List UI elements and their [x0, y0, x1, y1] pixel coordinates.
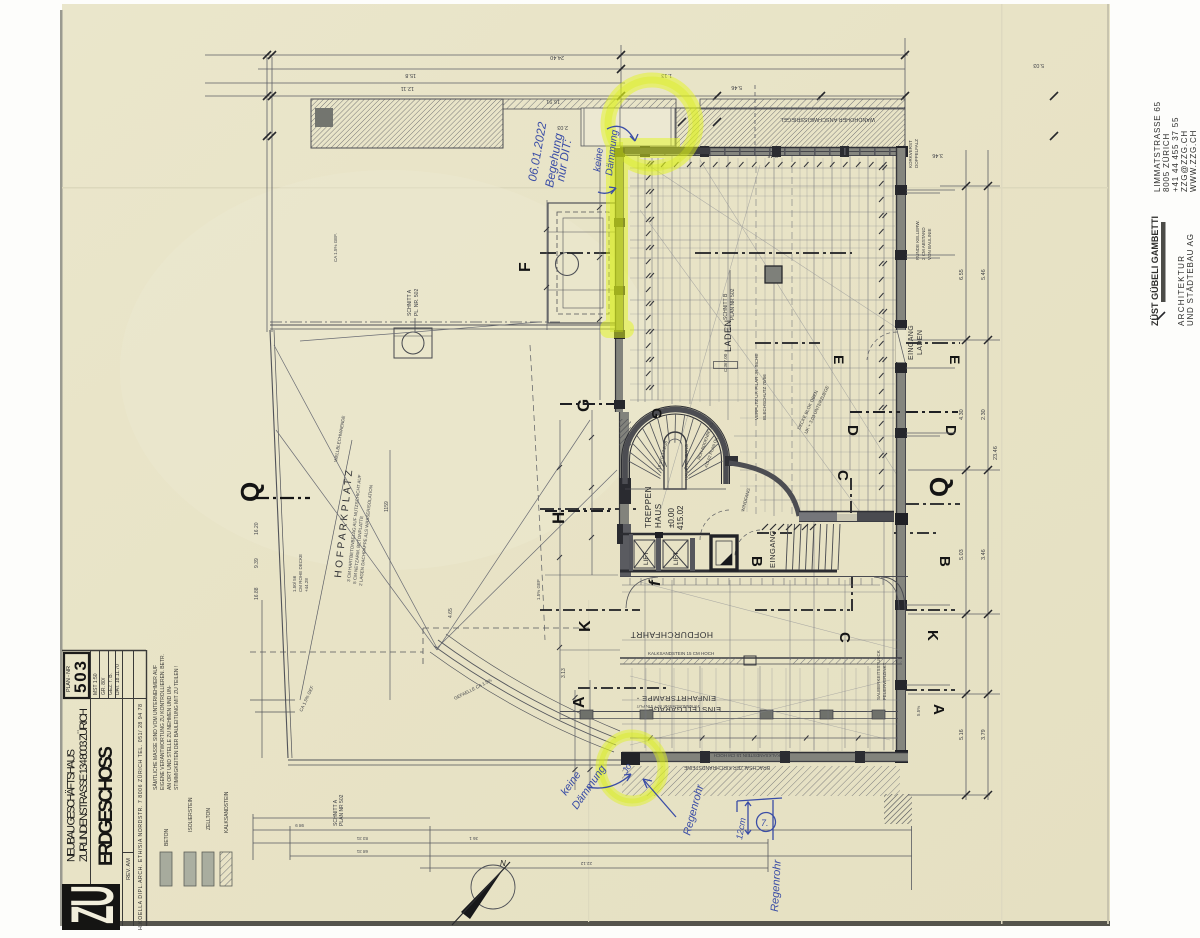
svg-text:C: C: [836, 632, 853, 643]
svg-text:ISOLIERSTEIN: ISOLIERSTEIN: [188, 797, 194, 832]
svg-text:PLAN NR 502: PLAN NR 502: [339, 794, 345, 826]
svg-text:68 31: 68 31: [356, 849, 368, 854]
svg-text:TREPPEN: TREPPEN: [644, 486, 653, 528]
svg-text:1159: 1159: [384, 501, 390, 512]
svg-text:BETON: BETON: [164, 828, 170, 846]
svg-text:ERDGESCHOSS: ERDGESCHOSS: [96, 746, 117, 866]
svg-text:415.02: 415.02: [676, 505, 685, 530]
svg-text:CA 1.5% GEF.: CA 1.5% GEF.: [333, 233, 338, 262]
svg-text:7.: 7.: [761, 818, 769, 828]
svg-text:16.88: 16.88: [254, 587, 260, 600]
svg-text:6.55: 6.55: [959, 269, 965, 280]
svg-text:BRACHSALZER KIRCHRANDSTEINE: BRACHSALZER KIRCHRANDSTEINE: [683, 764, 770, 770]
svg-text:H: H: [549, 512, 568, 524]
svg-text:1.5% GEF: 1.5% GEF: [536, 579, 541, 600]
svg-text:5.46: 5.46: [981, 269, 987, 280]
svg-text:SÄMTLICHE MASSE SIND VOM U: SÄMTLICHE MASSE SIND VOM UNTERNEHMER AUF: [152, 665, 159, 790]
svg-text:GEZ. f. B.: GEZ. f. B.: [108, 673, 114, 695]
svg-text:503: 503: [71, 661, 90, 693]
svg-text:3% WANDSCHIENE 90 + 4 IN PUT: 3% WANDSCHIENE 90 + 4 IN PUT: [636, 704, 700, 709]
svg-text:Q: Q: [924, 476, 954, 497]
svg-text:24.40: 24.40: [550, 54, 564, 60]
svg-text:D: D: [844, 425, 861, 436]
svg-text:5.16: 5.16: [959, 729, 965, 740]
svg-text:E: E: [831, 355, 847, 364]
svg-text:LIFT: LIFT: [643, 552, 650, 565]
svg-text:3.46: 3.46: [981, 549, 987, 560]
svg-text:C 367.00: C 367.00: [723, 353, 728, 372]
svg-text:LADEN: LADEN: [917, 330, 924, 355]
svg-text:2.03: 2.03: [557, 124, 568, 130]
svg-text:23.46: 23.46: [993, 446, 999, 460]
svg-text:KALKSANDSTEIN: KALKSANDSTEIN: [224, 791, 230, 833]
svg-text:MST 1:50: MST 1:50: [93, 673, 99, 695]
svg-text:EINGANG: EINGANG: [768, 530, 777, 568]
svg-text:K: K: [924, 630, 941, 641]
svg-text:C: C: [834, 470, 851, 481]
svg-text:VERPUTZ UP. PILAR JR. SICHE: VERPUTZ UP. PILAR JR. SICHE: [754, 354, 759, 420]
svg-text:B: B: [936, 556, 953, 567]
svg-text:K: K: [577, 620, 594, 632]
svg-text:E: E: [947, 355, 963, 364]
svg-text:+44.28: +44.28: [304, 578, 309, 592]
svg-text:HAUS: HAUS: [654, 503, 663, 528]
svg-text:STIMMIGKEITEN DER BAULEITUNG: STIMMIGKEITEN DER BAULEITUNG MIT ZU TEIL…: [174, 666, 180, 790]
svg-text:ARCHITEKTUR: ARCHITEKTUR: [1177, 256, 1186, 326]
svg-text:2.30: 2.30: [981, 409, 987, 420]
svg-text:A: A: [571, 696, 588, 708]
svg-text:22.12: 22.12: [580, 861, 592, 866]
svg-text:DAT. 18.11.70: DAT. 18.11.70: [115, 664, 121, 695]
svg-text:1.50/ 56: 1.50/ 56: [292, 575, 297, 592]
svg-text:LIMMATSTRASSE 65: LIMMATSTRASSE 65: [1153, 101, 1162, 192]
svg-text:B: B: [748, 556, 765, 567]
svg-text:3.13: 3.13: [561, 668, 567, 678]
svg-text:EINGANG: EINGANG: [908, 325, 915, 360]
svg-text:36 1: 36 1: [469, 836, 478, 841]
svg-text:3.79: 3.79: [981, 729, 987, 740]
svg-text:5.03: 5.03: [959, 549, 965, 560]
svg-text:ZURLINDENSTRASSE 134 8003 ZÜ: ZURLINDENSTRASSE 134 8003 ZÜRICH: [78, 708, 90, 862]
svg-text:FEUERVERZINKT: FEUERVERZINKT: [882, 662, 887, 700]
svg-text:16.20: 16.20: [254, 522, 260, 535]
svg-text:EIGENE VERANTWORTUNG ZU KON: EIGENE VERANTWORTUNG ZU KONTROLLIEREN. B…: [160, 654, 166, 790]
svg-text:NEUBAU GESCHÄFTSHAUS: NEUBAU GESCHÄFTSHAUS: [66, 749, 78, 862]
svg-text:ZÜST GÜBELI GAMBETTI: ZÜST GÜBELI GAMBETTI: [1150, 216, 1160, 326]
svg-text:GR. 80/: GR. 80/: [101, 677, 107, 695]
svg-text:+41 44 455 37 55: +41 44 455 37 55: [1171, 117, 1180, 192]
svg-text:D: D: [942, 425, 959, 436]
svg-text:H.KOELLA DIPL.ARCH. ETH/SIA: H.KOELLA DIPL.ARCH. ETH/SIA NORDSTR. 7 8…: [137, 704, 144, 930]
svg-text:5.46: 5.46: [731, 84, 742, 90]
svg-text:98 9: 98 9: [295, 823, 304, 828]
svg-text:±0.00: ±0.00: [667, 507, 676, 528]
svg-text:ZU: ZU: [60, 887, 127, 924]
svg-text:LADEN: LADEN: [723, 319, 733, 352]
svg-text:9.39: 9.39: [254, 558, 260, 568]
svg-text:ZZG@ZZG.CH: ZZG@ZZG.CH: [1180, 130, 1189, 192]
svg-text:PLAN NR 502: PLAN NR 502: [730, 288, 736, 320]
svg-text:HAUPTEINGANG: HAUPTEINGANG: [684, 443, 689, 480]
svg-text:SCHNITT A: SCHNITT A: [407, 289, 413, 316]
svg-text:G: G: [649, 408, 665, 419]
svg-text:5.5%: 5.5%: [916, 706, 921, 716]
svg-text:HOFDURCHFAHRT: HOFDURCHFAHRT: [630, 630, 713, 640]
svg-text:F: F: [517, 262, 534, 272]
svg-text:RUNDE KELLERW.: RUNDE KELLERW.: [915, 220, 920, 260]
svg-text:G: G: [574, 399, 593, 412]
svg-text:KALKSANDSTEIN 15 CM HOCH: KALKSANDSTEIN 15 CM HOCH: [714, 753, 780, 758]
svg-text:DOPPELFALZ: DOPPELFALZ: [914, 139, 919, 168]
svg-text:12.11: 12.11: [401, 85, 414, 91]
svg-text:KALKSANDSTEIN 15 CM HOCH: KALKSANDSTEIN 15 CM HOCH: [648, 651, 714, 656]
svg-text:BLECHSCHUTZ 70/56: BLECHSCHUTZ 70/56: [762, 374, 767, 420]
svg-text:PL. NR. 502: PL. NR. 502: [414, 289, 420, 316]
svg-text:N: N: [500, 859, 506, 868]
svg-text:KORKVERST: KORKVERST: [908, 140, 913, 168]
svg-text:15.8: 15.8: [405, 72, 416, 78]
svg-text:3.46: 3.46: [932, 152, 943, 158]
svg-text:ZELLTON: ZELLTON: [206, 808, 212, 830]
svg-text:EINFAHRTSRAMPE -: EINFAHRTSRAMPE -: [636, 694, 716, 703]
svg-text:WWW.ZZG.CH: WWW.ZZG.CH: [1189, 130, 1198, 192]
svg-text:A: A: [930, 704, 947, 715]
svg-text:5.03: 5.03: [1033, 62, 1044, 68]
svg-text:REV. AM: REV. AM: [126, 858, 132, 880]
svg-text:83 31: 83 31: [356, 836, 368, 841]
svg-text:CM ROHE DECKE: CM ROHE DECKE: [298, 554, 303, 592]
svg-text:4.30: 4.30: [959, 409, 965, 420]
svg-text:WANDHOHER ANSCHWEISSRIEGEL: WANDHOHER ANSCHWEISSRIEGEL: [780, 116, 875, 122]
svg-text:8005 ZÜRICH: 8005 ZÜRICH: [1162, 133, 1171, 192]
svg-text:SAUBERKEITSSTUECK: SAUBERKEITSSTUECK: [876, 650, 881, 700]
svg-text:AN ORT UND STELLE ZU NEHM: AN ORT UND STELLE ZU NEHMEN UND UN-: [167, 685, 173, 790]
svg-text:4.65: 4.65: [448, 608, 454, 618]
svg-text:UND STÄDTEBAU AG: UND STÄDTEBAU AG: [1186, 234, 1195, 326]
svg-text:LIFT: LIFT: [673, 552, 680, 565]
